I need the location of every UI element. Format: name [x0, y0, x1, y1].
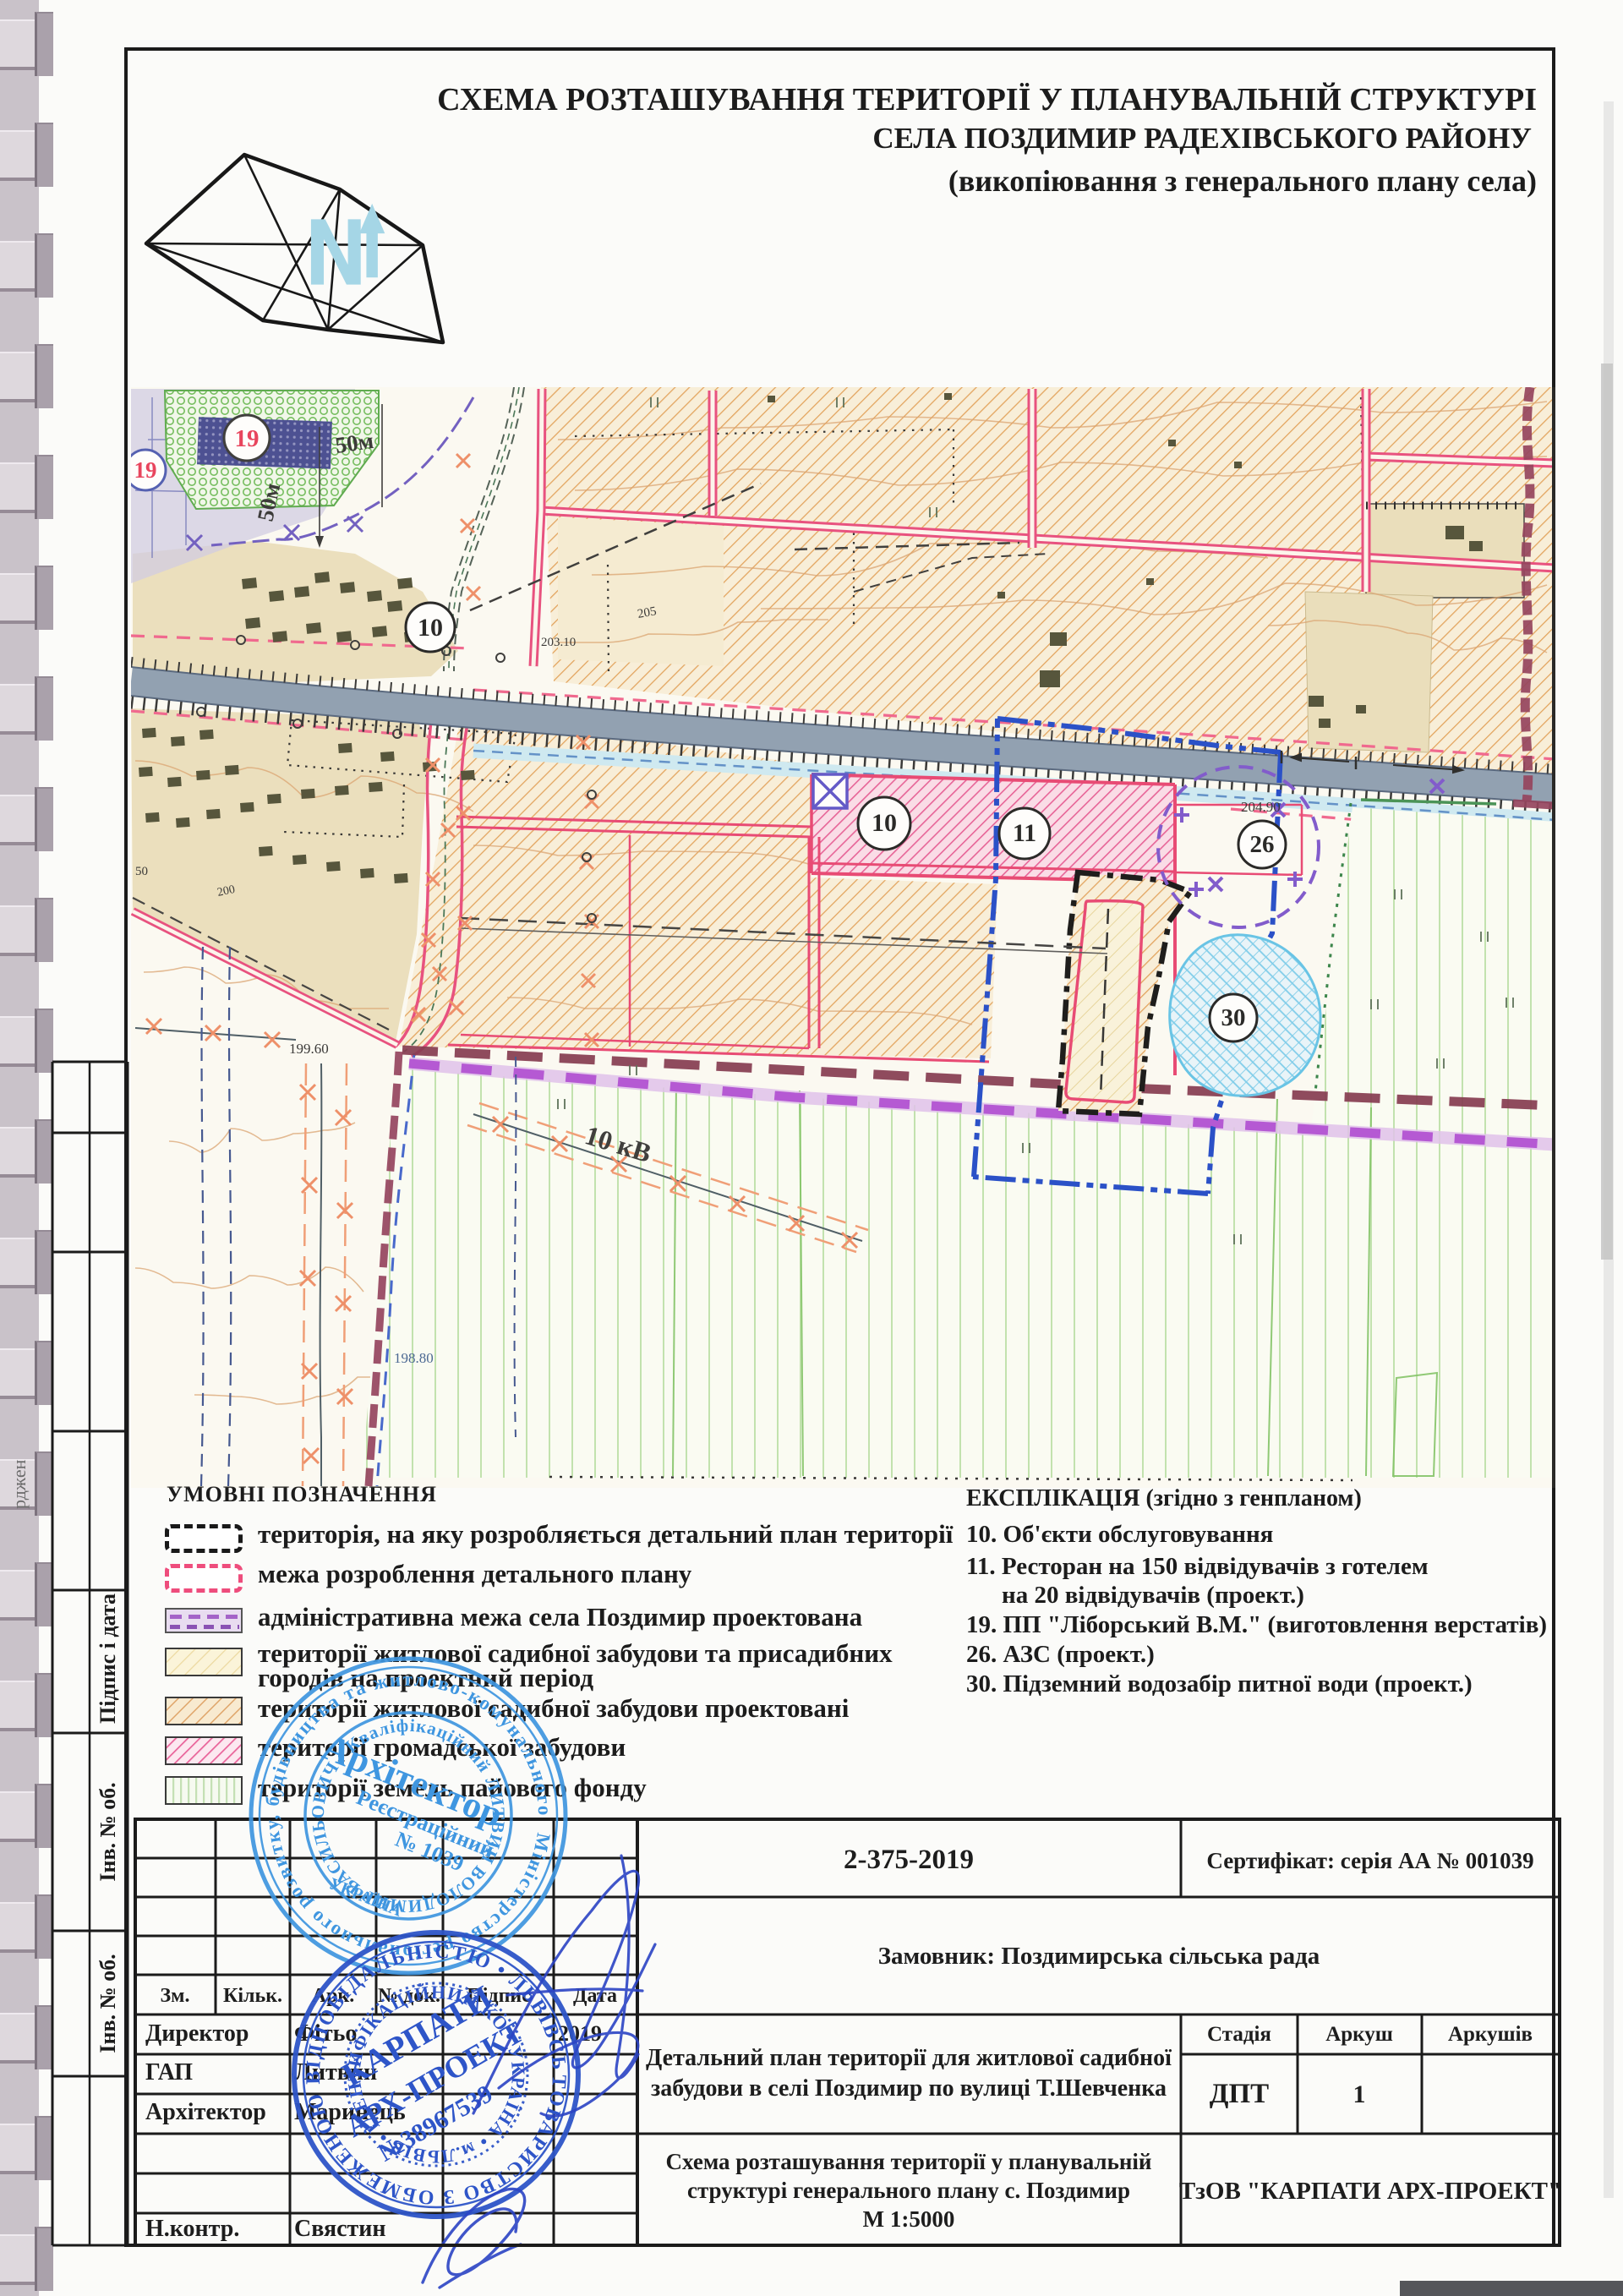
- svg-text:Замовник: Поздимирська сільськ: Замовник: Поздимирська сільська рада: [878, 1943, 1320, 1970]
- svg-text:ЛИТВИН ВОЛОДИМИР ВАСИЛЬОВИЧ •: ЛИТВИН ВОЛОДИМИР ВАСИЛЬОВИЧ • Кваліфікац…: [0, 1606, 509, 1916]
- svg-text:204.90: 204.90: [1241, 799, 1281, 815]
- svg-text:19: 19: [134, 457, 157, 483]
- svg-text:Аркушів: Аркушів: [1448, 2023, 1533, 2046]
- svg-text:1: 1: [1353, 2080, 1366, 2108]
- svg-text:ДПТ: ДПТ: [1210, 2079, 1269, 2109]
- svg-text:11: 11: [1013, 819, 1036, 847]
- svg-text:198.80: 198.80: [394, 1350, 434, 1366]
- svg-text:Стадія: Стадія: [1207, 2023, 1271, 2046]
- svg-text:М 1:5000: М 1:5000: [863, 2206, 955, 2232]
- svg-text:Сертифікат: серія АА № 001039: Сертифікат: серія АА № 001039: [1206, 1848, 1533, 1873]
- svg-text:Аркуш: Аркуш: [1325, 2023, 1393, 2046]
- svg-text:50: 50: [135, 865, 148, 878]
- svg-text:50м: 50м: [334, 428, 375, 458]
- svg-text:10: 10: [872, 809, 897, 837]
- svg-text:199.60: 199.60: [289, 1041, 329, 1057]
- svg-text:203.10: 203.10: [541, 636, 576, 649]
- svg-text:26: 26: [1250, 831, 1275, 858]
- svg-text:30: 30: [1221, 1004, 1246, 1031]
- svg-text:19: 19: [235, 425, 260, 452]
- svg-text:ТзОВ "КАРПАТИ АРХ-ПРОЕКТ": ТзОВ "КАРПАТИ АРХ-ПРОЕКТ": [1179, 2178, 1561, 2205]
- svg-text:10: 10: [418, 614, 443, 642]
- svg-text:2-375-2019: 2-375-2019: [844, 1845, 974, 1875]
